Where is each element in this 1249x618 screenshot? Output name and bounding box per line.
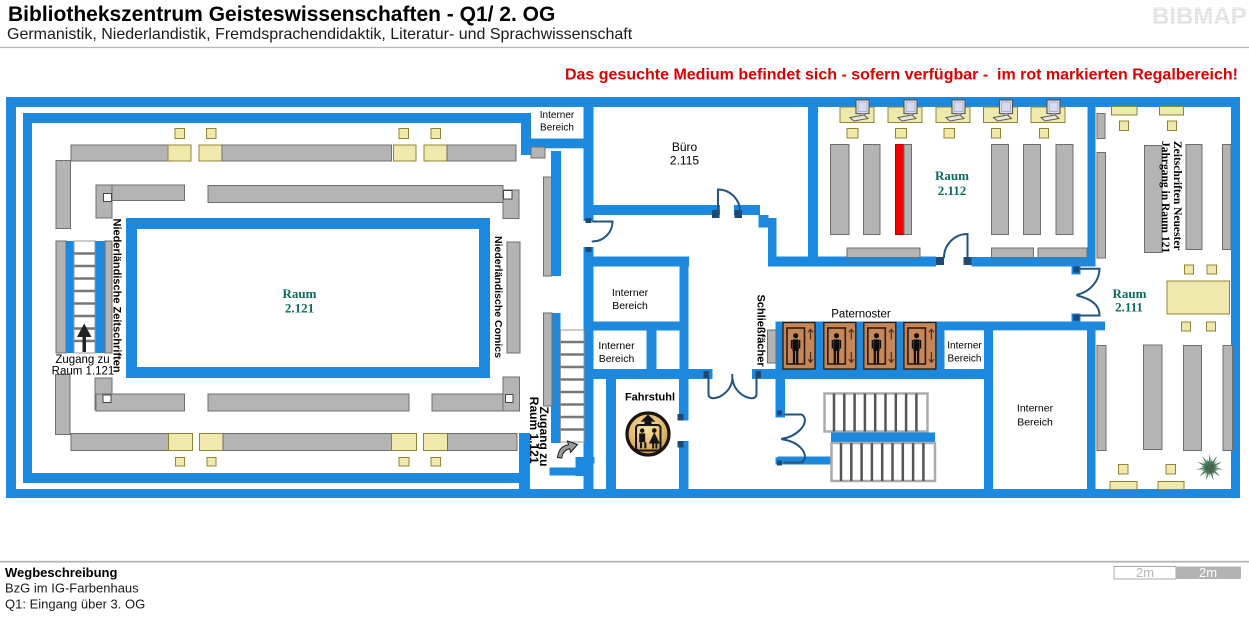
svg-text:Niederländische Zeitschriften: Niederländische Zeitschriften xyxy=(111,219,123,373)
svg-text:Wegbeschreibung: Wegbeschreibung xyxy=(5,565,118,580)
svg-text:Q1: Eingang über 3. OG: Q1: Eingang über 3. OG xyxy=(5,597,145,612)
svg-text:Raum 1.121: Raum 1.121 xyxy=(527,397,541,464)
svg-text:Interner: Interner xyxy=(612,287,649,299)
svg-text:Zugang zu: Zugang zu xyxy=(55,354,109,366)
svg-text:2m: 2m xyxy=(1136,565,1154,580)
svg-text:Jahrgang in Raum 121: Jahrgang in Raum 121 xyxy=(1159,141,1171,253)
svg-text:Niederländische Comics: Niederländische Comics xyxy=(492,236,504,358)
svg-text:Bereich: Bereich xyxy=(599,353,635,365)
svg-text:2.112: 2.112 xyxy=(938,183,967,198)
svg-text:Büro: Büro xyxy=(672,140,698,154)
svg-text:Bereich: Bereich xyxy=(540,123,574,134)
svg-text:BIBMAP: BIBMAP xyxy=(1152,3,1247,30)
svg-text:2.115: 2.115 xyxy=(670,154,699,168)
svg-text:Zeitschriften Neuester: Zeitschriften Neuester xyxy=(1171,141,1183,251)
svg-text:Bibliothekszentrum Geisteswiss: Bibliothekszentrum Geisteswissenschaften… xyxy=(8,3,555,26)
svg-text:Interner: Interner xyxy=(540,110,575,121)
svg-text:2m: 2m xyxy=(1199,565,1217,580)
svg-text:Interner: Interner xyxy=(598,340,635,352)
svg-text:Schließfächer: Schließfächer xyxy=(755,295,767,368)
svg-text:Bereich: Bereich xyxy=(948,354,982,365)
svg-text:Bereich: Bereich xyxy=(1017,417,1053,429)
svg-text:2.121: 2.121 xyxy=(285,301,314,316)
svg-text:BzG im IG-Farbenhaus: BzG im IG-Farbenhaus xyxy=(5,581,139,596)
svg-text:Fahrstuhl: Fahrstuhl xyxy=(625,392,675,404)
svg-text:Bereich: Bereich xyxy=(612,300,648,312)
svg-text:Raum: Raum xyxy=(283,286,317,301)
svg-text:Raum: Raum xyxy=(935,168,969,183)
svg-text:Interner: Interner xyxy=(947,341,982,352)
svg-text:Germanistik, Niederlandistik,: Germanistik, Niederlandistik, Fremdsprac… xyxy=(7,26,633,43)
svg-text:2.111: 2.111 xyxy=(1115,300,1143,315)
svg-text:Das gesuchte Medium befindet s: Das gesuchte Medium befindet sich - sofe… xyxy=(565,67,1238,84)
svg-text:Interner: Interner xyxy=(1017,403,1054,415)
svg-text:Raum 1.121: Raum 1.121 xyxy=(52,366,115,378)
svg-text:Paternoster: Paternoster xyxy=(831,309,891,321)
